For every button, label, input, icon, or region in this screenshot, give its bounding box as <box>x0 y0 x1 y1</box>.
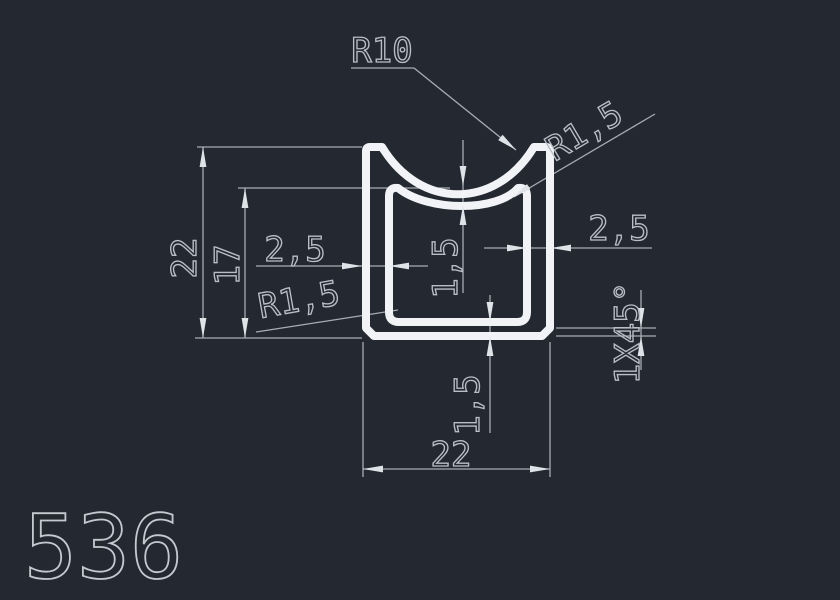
part-number-label: 536 <box>24 496 183 599</box>
dim-text-height-to-saddle: 17 <box>208 245 248 286</box>
dim-text-wall-top: 1,5 <box>426 237 466 298</box>
arrow-width-left <box>363 466 383 473</box>
dimension-texts: R10 R1,5 R1,5 2,5 2,5 22 17 1,5 1,5 22 1… <box>165 31 650 475</box>
dim-text-wall-bottom: 1,5 <box>448 374 488 435</box>
cad-drawing-canvas: R10 R1,5 R1,5 2,5 2,5 22 17 1,5 1,5 22 1… <box>0 0 840 600</box>
dim-text-height-total: 22 <box>165 238 205 279</box>
dim-text-radius-saddle: R10 <box>351 31 412 71</box>
dim-text-wall-left: 2,5 <box>264 230 325 270</box>
arrow-wall-left-outer <box>342 263 362 270</box>
arrow-height-total-top <box>200 147 207 167</box>
arrow-width-right <box>530 466 550 473</box>
dim-text-width-total: 22 <box>431 435 472 475</box>
arrow-wall-top-outer <box>460 166 467 186</box>
dim-text-wall-right: 2,5 <box>588 209 649 249</box>
dim-text-chamfer: 1X45° <box>608 282 648 384</box>
dim-text-radius-bottom-left: R1,5 <box>255 273 343 327</box>
arrow-r10-leader <box>498 135 516 150</box>
arrow-height-saddle-bottom <box>242 318 249 338</box>
arrow-height-total-bottom <box>200 318 207 338</box>
dim-text-radius-top-right: R1,5 <box>539 94 630 170</box>
arrow-height-saddle-top <box>242 188 249 208</box>
cad-viewport: R10 R1,5 R1,5 2,5 2,5 22 17 1,5 1,5 22 1… <box>0 0 840 600</box>
